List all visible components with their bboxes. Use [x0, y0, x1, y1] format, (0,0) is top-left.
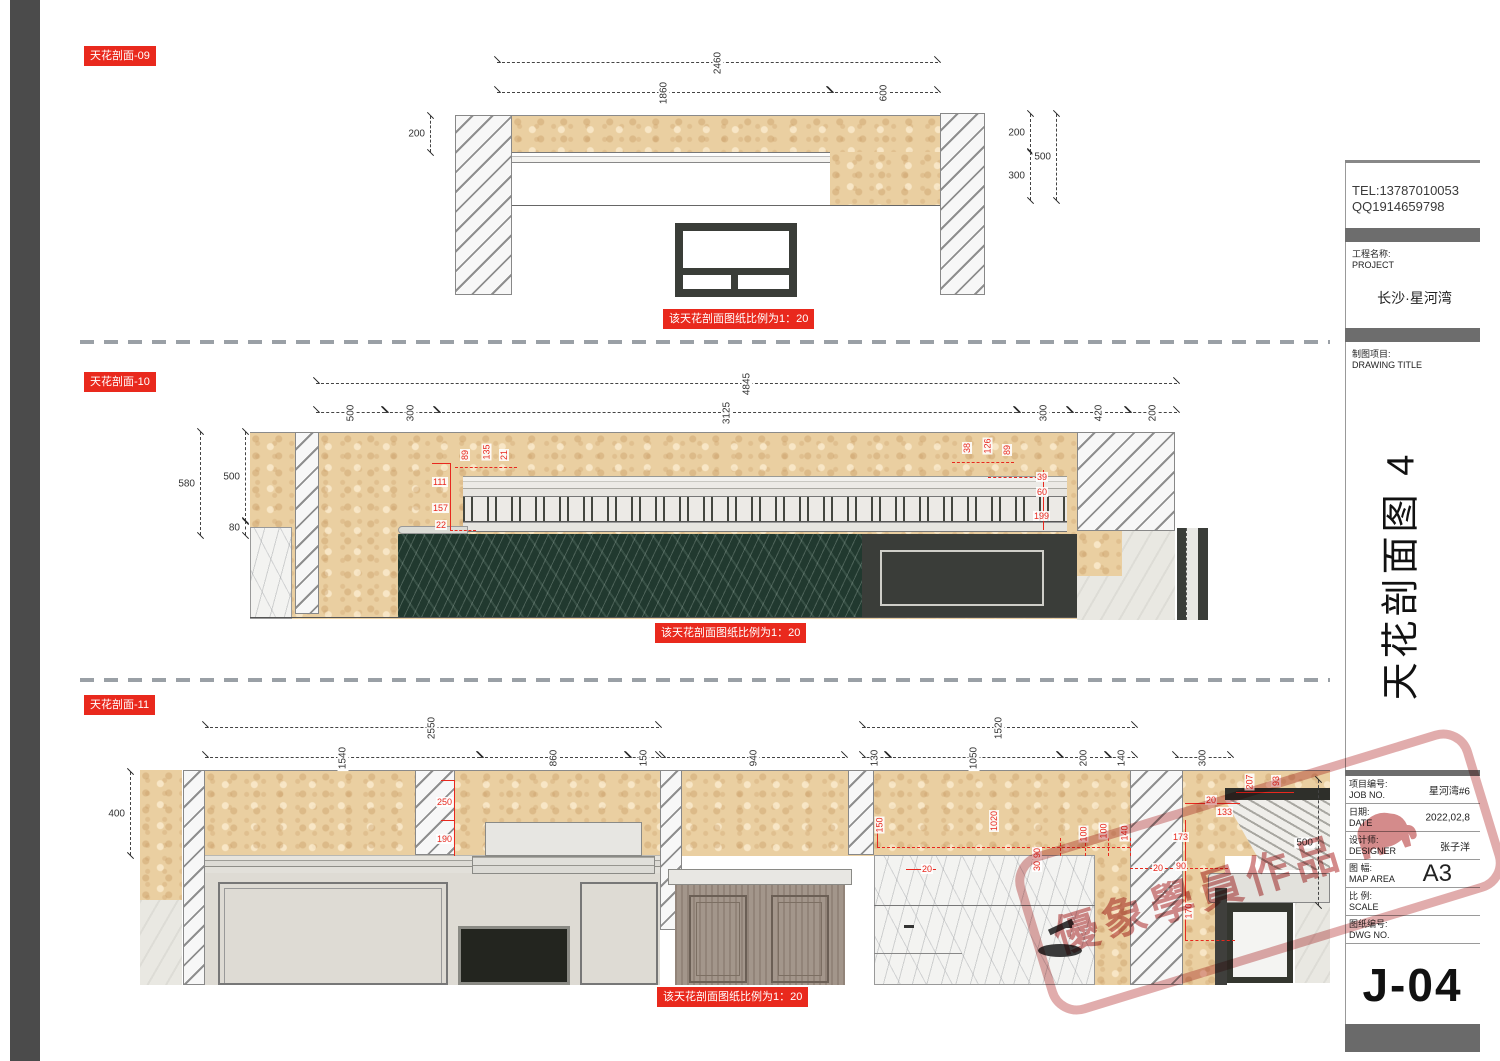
- red-dimension-value: 21: [499, 449, 509, 461]
- dimension-line: 140: [1108, 757, 1135, 758]
- dimension-value: 140: [1116, 748, 1127, 769]
- red-dimension-value: 100: [1079, 825, 1089, 842]
- dimension-value: 80: [227, 523, 242, 534]
- dimension-value: 500: [1032, 152, 1053, 163]
- red-annotation-line: [454, 780, 455, 856]
- dimension-value: 4845: [741, 371, 752, 397]
- dimension-line: 130: [862, 757, 888, 758]
- red-dimension-value: 20: [1152, 863, 1164, 873]
- red-dimension-value: 20: [921, 864, 933, 874]
- dimension-line: 400: [130, 772, 131, 855]
- dimension-line: 1520: [862, 727, 1135, 728]
- dimension-line: 80: [245, 521, 246, 535]
- red-dimension-value: 157: [432, 503, 449, 513]
- dimension-value: 300: [1038, 403, 1049, 424]
- dimension-value: 200: [1147, 403, 1158, 424]
- dimension-value: 500: [1294, 837, 1315, 848]
- red-dimension-value: 199: [1033, 511, 1050, 521]
- dimension-line: 3125: [437, 412, 1017, 413]
- dimension-line: 500: [1056, 114, 1057, 200]
- dimension-line: 300: [1017, 412, 1070, 413]
- dimension-value: 200: [1079, 748, 1090, 769]
- dimension-value: 940: [748, 748, 759, 769]
- red-dimension-value: 250: [436, 797, 453, 807]
- dimension-value: 580: [176, 478, 197, 489]
- red-annotation-line: [441, 820, 455, 821]
- dimension-value: 1520: [993, 715, 1004, 741]
- red-annotation-line: [441, 780, 455, 781]
- dimension-value: 500: [221, 471, 242, 482]
- red-dimension-value: 150: [875, 816, 885, 833]
- red-dimension-value: 135: [482, 443, 492, 460]
- dimension-line: 940: [662, 757, 845, 758]
- red-dimension-value: 39: [1036, 472, 1048, 482]
- dimension-value: 200: [406, 129, 427, 140]
- red-dimension-value: 89: [1002, 444, 1012, 456]
- red-dimension-value: 38: [962, 442, 972, 454]
- red-dimension-value: 30: [1032, 860, 1042, 872]
- dimension-line: 500: [316, 412, 385, 413]
- red-dimension-value: 111: [432, 477, 448, 487]
- dimension-value: 300: [1006, 171, 1027, 182]
- dimension-line: 2550: [205, 727, 659, 728]
- dimension-line: 300: [1175, 757, 1231, 758]
- red-dimension-value: 190: [436, 834, 453, 844]
- red-annotation-line: [1236, 792, 1294, 793]
- dimension-value: 420: [1094, 403, 1105, 424]
- red-dimension-value: 133: [1216, 807, 1233, 817]
- red-dimension-value: 100: [1099, 822, 1109, 839]
- dimension-line: 1540: [205, 757, 480, 758]
- red-annotation-line: [1108, 838, 1109, 856]
- dimension-line: 600: [830, 92, 938, 93]
- dimension-line: 500: [245, 432, 246, 521]
- dimension-value: 130: [870, 748, 881, 769]
- dimension-line: 4845: [316, 383, 1177, 384]
- dimension-line: 150: [628, 757, 659, 758]
- red-annotation-line: [432, 463, 451, 464]
- red-annotation-line: [877, 847, 1130, 848]
- dimension-value: 300: [1198, 748, 1209, 769]
- dimension-line: 300: [385, 412, 437, 413]
- dimension-value: 3125: [722, 400, 733, 426]
- red-dimension-value: 1020: [989, 810, 999, 832]
- red-annotation-line: [952, 462, 1014, 463]
- dimension-line: 860: [480, 757, 628, 758]
- drawing-sheet: 天花剖面-09 该天花剖面图纸比例为1：20 天花剖面-10 该天花剖面图纸比例…: [0, 0, 1500, 1061]
- red-dimension-value: 140: [1120, 824, 1130, 841]
- red-annotation-line: [1130, 838, 1131, 856]
- red-dimension-value: 60: [1036, 487, 1048, 497]
- red-annotation-line: [450, 463, 451, 531]
- dimension-value: 600: [879, 83, 890, 104]
- dimensions-layer: 2460186060020020030050048455003003125300…: [0, 0, 1500, 1061]
- dimension-line: 420: [1070, 412, 1128, 413]
- red-annotation-line: [1060, 838, 1061, 856]
- dimension-line: 300: [1030, 152, 1031, 200]
- dimension-line: 580: [200, 432, 201, 535]
- red-annotation-line: [988, 477, 1043, 478]
- red-dimension-value: 126: [983, 437, 993, 454]
- red-dimension-value: 22: [435, 520, 447, 530]
- red-annotation-line: [1185, 940, 1235, 941]
- dimension-line: 1050: [888, 757, 1060, 758]
- red-annotation-line: [450, 530, 476, 531]
- dimension-line: 200: [1128, 412, 1177, 413]
- dimension-value: 1860: [658, 80, 669, 106]
- dimension-value: 2460: [712, 50, 723, 76]
- dimension-line: 1860: [497, 92, 830, 93]
- dimension-value: 150: [638, 748, 649, 769]
- dimension-value: 200: [1006, 128, 1027, 139]
- dimension-value: 400: [106, 808, 127, 819]
- red-dimension-value: 170: [1184, 902, 1194, 919]
- red-dimension-value: 20: [1205, 795, 1217, 805]
- red-annotation-line: [455, 467, 517, 468]
- dimension-line: 200: [430, 116, 431, 152]
- dimension-line: 200: [1030, 114, 1031, 152]
- red-dimension-value: 89: [460, 449, 470, 461]
- red-dimension-value: 93: [1271, 775, 1281, 787]
- dimension-value: 300: [406, 403, 417, 424]
- dimension-value: 1050: [969, 745, 980, 771]
- red-dimension-value: 207: [1245, 773, 1255, 790]
- red-dimension-value: 90: [1032, 847, 1042, 859]
- dimension-value: 1540: [337, 745, 348, 771]
- dimension-line: 2460: [497, 62, 938, 63]
- red-dimension-value: 173: [1172, 832, 1189, 842]
- dimension-value: 500: [345, 403, 356, 424]
- dimension-value: 860: [549, 748, 560, 769]
- dimension-value: 2550: [427, 715, 438, 741]
- dimension-line: 200: [1060, 757, 1108, 758]
- red-dimension-value: 90: [1175, 861, 1187, 871]
- dimension-line: 500: [1318, 780, 1319, 905]
